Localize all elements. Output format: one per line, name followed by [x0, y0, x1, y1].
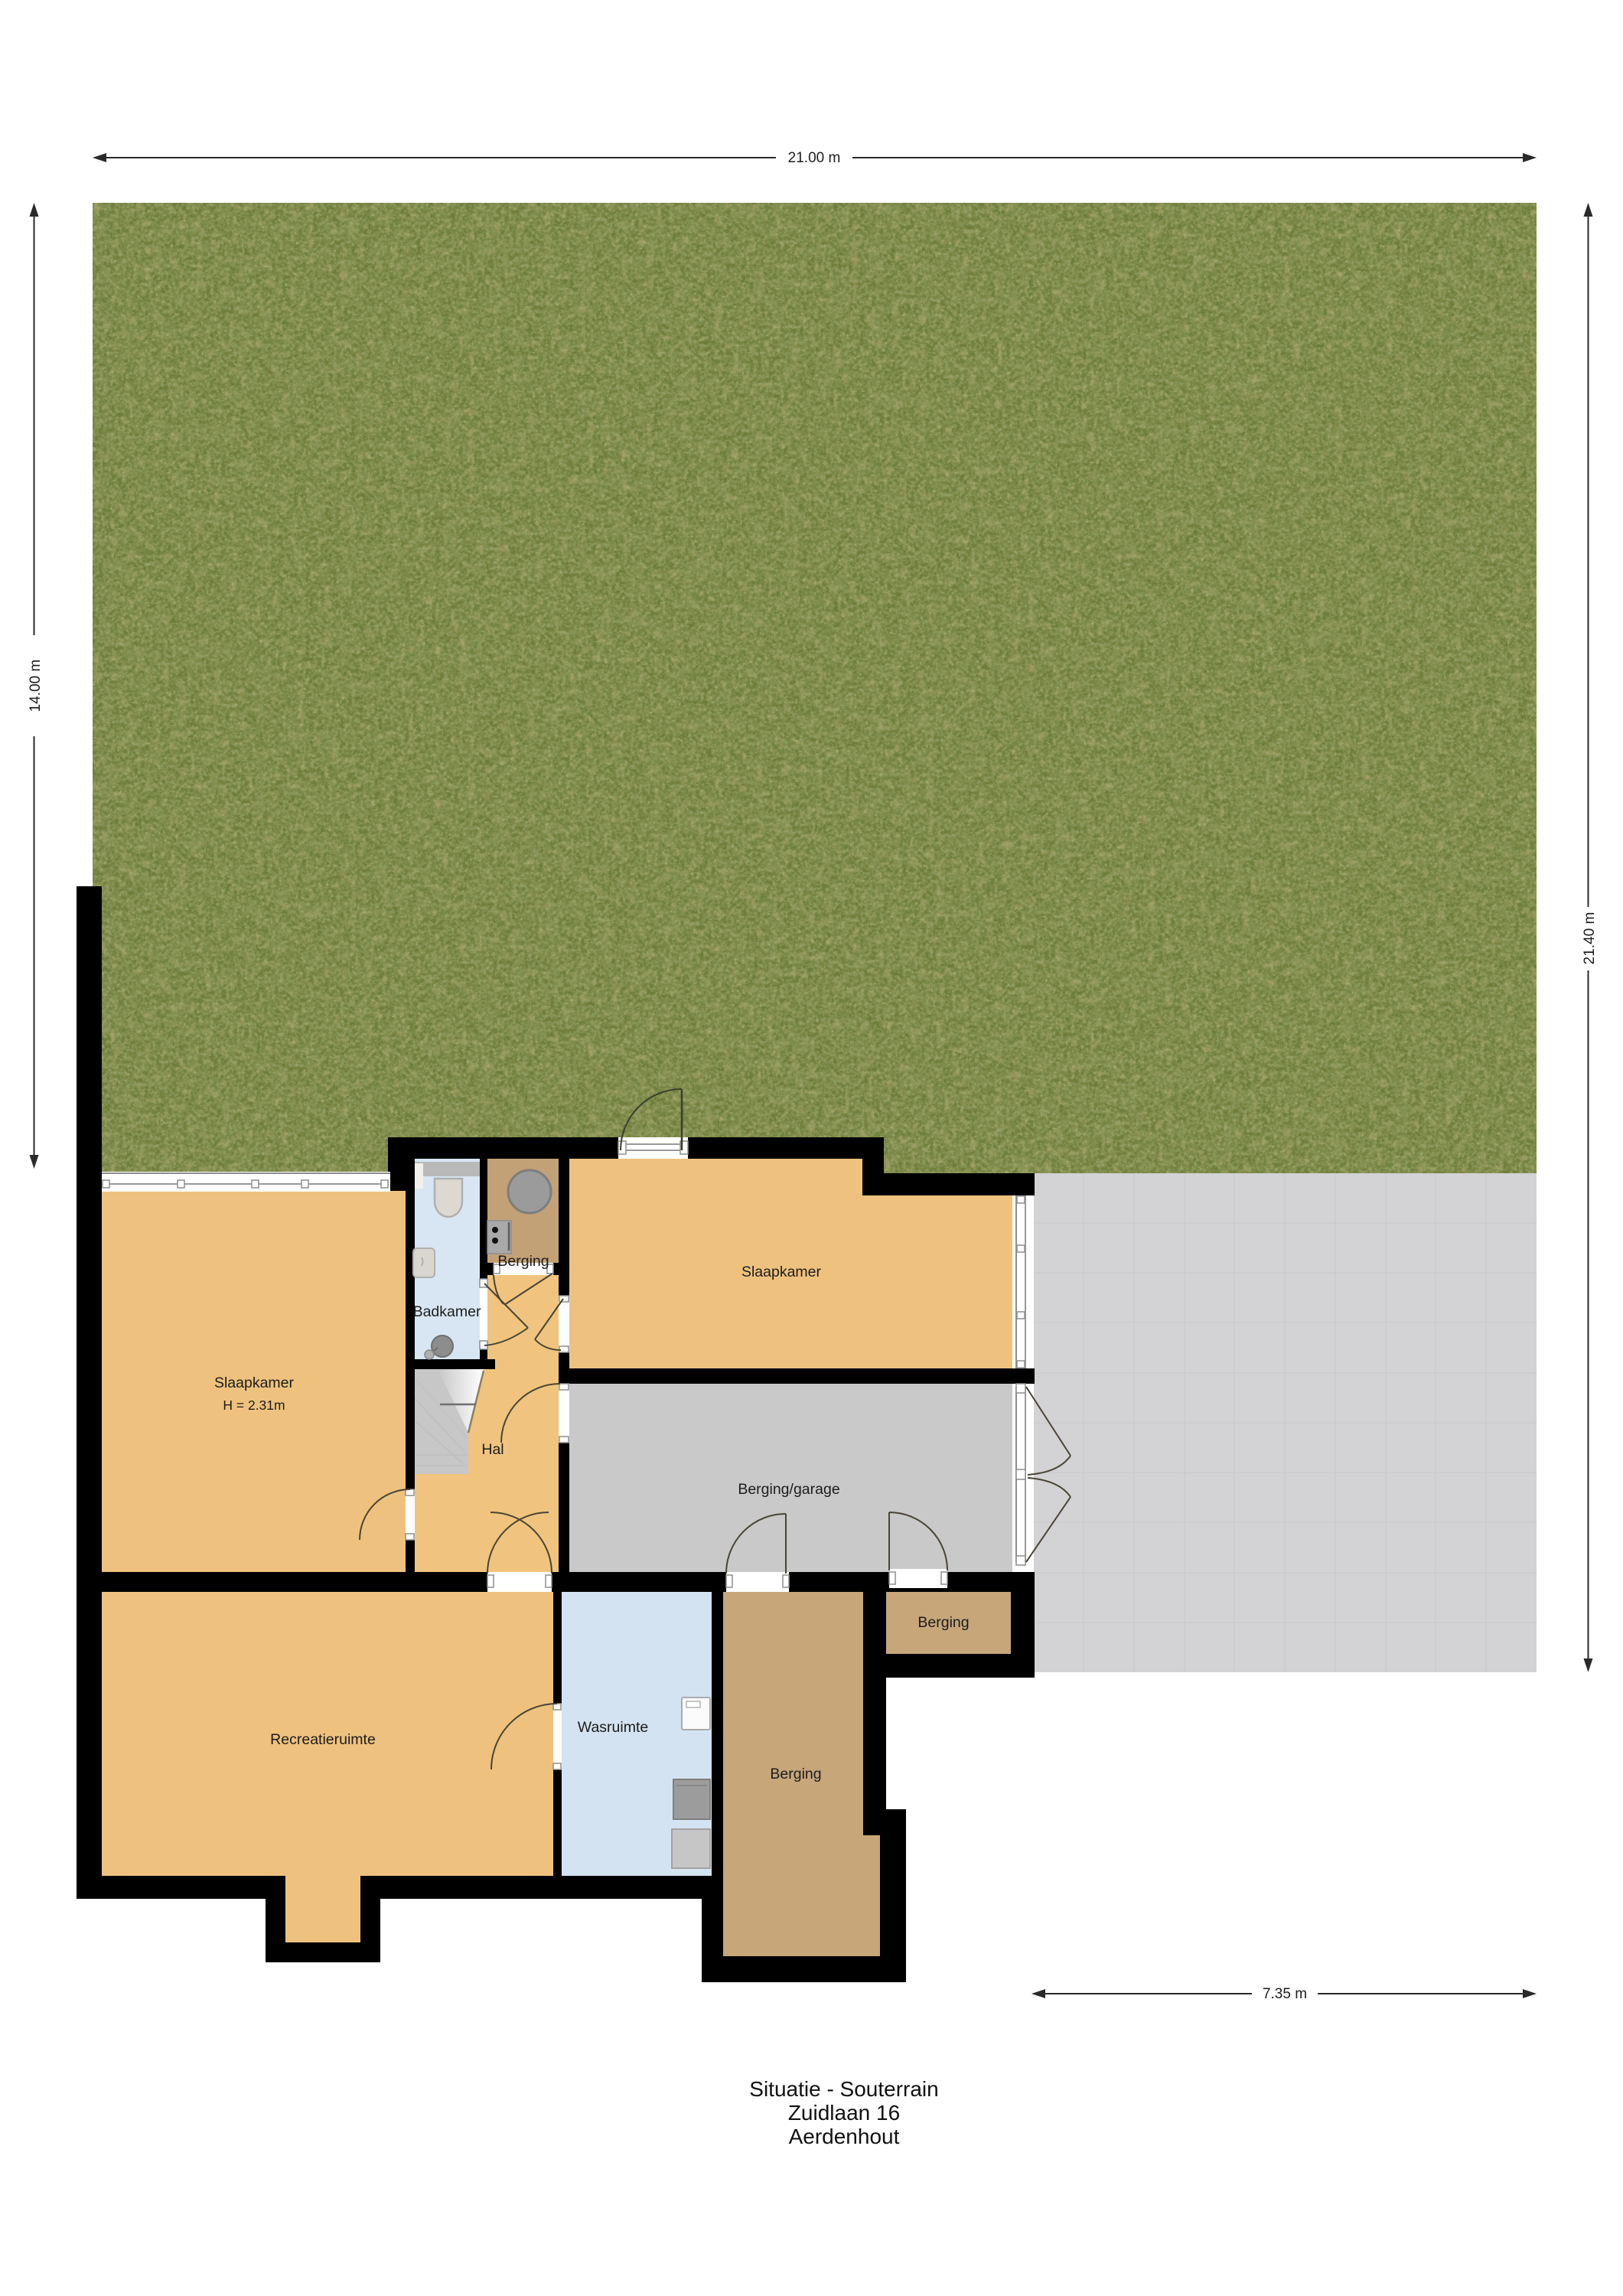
- svg-text:Recreatieruimte: Recreatieruimte: [270, 1731, 376, 1748]
- svg-text:Hal: Hal: [481, 1441, 504, 1458]
- svg-text:Berging: Berging: [770, 1766, 821, 1782]
- svg-text:Badkamer: Badkamer: [413, 1303, 481, 1320]
- svg-text:Situatie - Souterrain: Situatie - Souterrain: [749, 2077, 938, 2101]
- svg-text:H = 2.31m: H = 2.31m: [223, 1397, 285, 1413]
- svg-text:Slaapkamer: Slaapkamer: [741, 1264, 822, 1280]
- svg-text:Berging/garage: Berging/garage: [738, 1481, 839, 1498]
- svg-text:7.35 m: 7.35 m: [1263, 1986, 1307, 2002]
- svg-text:Berging: Berging: [917, 1614, 969, 1631]
- svg-text:Berging: Berging: [497, 1253, 549, 1270]
- svg-text:Wasruimte: Wasruimte: [578, 1719, 648, 1736]
- svg-text:21.00 m: 21.00 m: [788, 150, 841, 166]
- svg-text:21.40 m: 21.40 m: [1582, 912, 1598, 965]
- svg-text:Slaapkamer: Slaapkamer: [214, 1375, 295, 1391]
- svg-text:Zuidlaan 16: Zuidlaan 16: [788, 2101, 900, 2125]
- svg-text:14.00 m: 14.00 m: [28, 660, 44, 713]
- svg-text:Aerdenhout: Aerdenhout: [789, 2125, 900, 2148]
